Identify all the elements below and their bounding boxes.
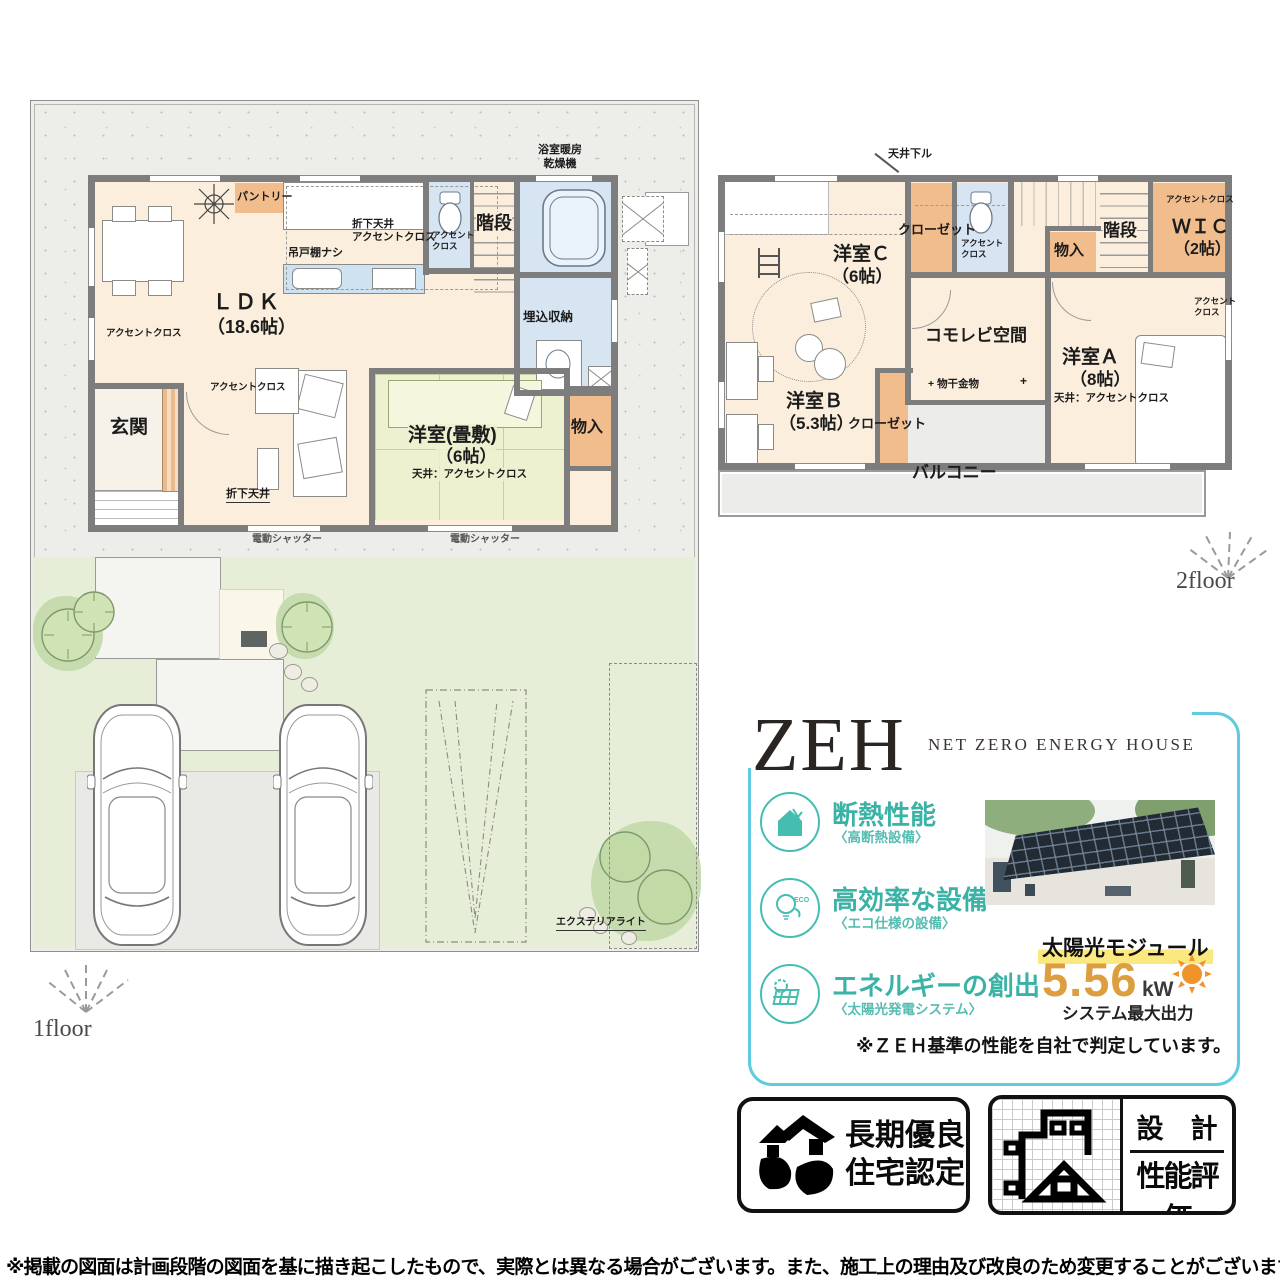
solar-panel-icon <box>760 964 820 1024</box>
wall <box>423 268 520 274</box>
window <box>88 228 95 286</box>
window-shutter <box>248 525 320 532</box>
room-label-ldk-size: （18.6帖） <box>207 316 296 339</box>
plant-icon <box>190 180 238 228</box>
ladder-icon <box>758 248 780 278</box>
footer-disclaimer: ※掲載の図面は計画段階の図面を基に描き起こしたもので、実際とは異なる場合がござい… <box>6 1252 1278 1279</box>
dining-table <box>102 220 184 282</box>
kitchen-ceiling-label: 折下天井 アクセントクロス <box>352 218 435 244</box>
window <box>536 175 592 182</box>
accent-a-label: アクセント クロス <box>1194 296 1236 317</box>
ac-unit-dashed <box>627 248 648 295</box>
kw-unit: kW <box>1142 978 1174 1001</box>
bed-pillow <box>1141 342 1176 368</box>
wall <box>1008 175 1014 275</box>
ottoman <box>814 348 846 380</box>
floor1-label: 1floor <box>33 1014 92 1044</box>
room-a-label: 洋室Ａ <box>1062 346 1119 370</box>
ceiling-slope-line <box>730 234 902 235</box>
solar-roof-photo <box>985 800 1215 905</box>
kitchen-note-label: 吊戸棚ナシ <box>288 247 343 261</box>
window-shutter <box>428 525 512 532</box>
sloped-ceiling-area <box>725 182 829 235</box>
closet-b-label: クローゼット <box>848 416 926 432</box>
komorebi-label: コモレビ空間 <box>925 325 1027 346</box>
window <box>1058 175 1098 182</box>
wall <box>514 175 520 395</box>
pantry-label: パントリー <box>237 191 293 205</box>
zeh-subtitle: NET ZERO ENERGY HOUSE <box>928 735 1195 755</box>
rays-decoration <box>36 962 136 1014</box>
floor2-label: 2floor <box>1176 566 1235 596</box>
tatami-ceiling-label: 天井：アクセントクロス <box>412 468 527 481</box>
window <box>611 300 618 342</box>
genkan-porch-steps <box>95 490 178 526</box>
wall <box>1045 228 1050 278</box>
badge-choki-text: 長期優良 住宅認定 <box>845 1117 965 1193</box>
wall <box>514 272 618 278</box>
badge-choki-yuryo: 長期優良 住宅認定 <box>737 1097 970 1213</box>
room-c-label: 洋室Ｃ <box>833 243 890 267</box>
room-label-ldk: ＬＤＫ <box>212 290 281 316</box>
insulation-icon <box>760 792 820 852</box>
neighbor-outline <box>609 663 697 949</box>
closet-c-label: クローゼット <box>898 222 976 238</box>
bathtub-icon <box>541 188 607 268</box>
stairs-label-2f: 階段 <box>1103 220 1137 241</box>
monoire-label-2f: 物入 <box>1054 242 1084 261</box>
stepping-stone <box>284 664 302 680</box>
planting-bed-outline <box>425 689 527 943</box>
zeh-note: ※ＺＥＨ基準の性能を自社で判定しています。 <box>856 1032 1231 1058</box>
stepping-stone <box>269 643 288 659</box>
doormat <box>241 631 267 647</box>
wall <box>178 383 184 532</box>
window <box>718 382 725 428</box>
shutter-label: 電動シャッター <box>450 534 520 547</box>
desk <box>726 414 758 464</box>
wic-accent-label: アクセントクロス <box>1166 194 1234 205</box>
wall <box>470 175 474 270</box>
wall <box>1045 278 1051 463</box>
room-a-ceiling-label: 天井：アクセントクロス <box>1054 392 1169 405</box>
window <box>718 232 725 282</box>
badge-grid-area <box>992 1099 1123 1211</box>
wall <box>88 383 183 389</box>
desk-chair <box>758 356 774 382</box>
monohoshi-label: + 物干金物 <box>928 378 979 391</box>
tatami-size-label: （6帖） <box>436 446 496 467</box>
system-output-label: システム最大出力 <box>1062 1000 1194 1024</box>
monohoshi-mark: + <box>1020 374 1027 389</box>
wall <box>875 368 913 373</box>
sofa-cushion <box>297 437 343 479</box>
room-b-label: 洋室Ｂ <box>786 390 843 414</box>
window <box>300 175 360 182</box>
svg-text:ECO: ECO <box>794 897 809 904</box>
desk <box>726 342 758 400</box>
genkan-label: 玄関 <box>110 416 148 440</box>
wall <box>564 466 618 471</box>
kw-value: 5.56 kW <box>1042 952 1173 1007</box>
sun-icon <box>1170 952 1214 996</box>
wall <box>369 368 570 374</box>
wall <box>905 272 1045 278</box>
wall <box>1148 272 1232 278</box>
badge-sekkei-bottom: 性能評価 <box>1124 1153 1230 1215</box>
wall <box>564 386 618 391</box>
tree-icon <box>71 589 117 635</box>
toilet-accent-label-2f: アクセント クロス <box>961 238 1003 259</box>
tatami-label: 洋室(畳敷) <box>408 424 497 448</box>
tenjo-label: 天井下ル <box>888 148 932 162</box>
zeh-feature-sub: 〈エコ仕様の設備〉 <box>834 912 956 932</box>
house-grid-icon <box>992 1099 1120 1211</box>
zeh-feature-sub: 〈太陽光発電システム〉 <box>834 998 982 1018</box>
wall <box>88 525 618 532</box>
wall <box>1045 272 1155 278</box>
wall <box>1045 226 1101 231</box>
wall <box>564 368 570 532</box>
stepping-stone <box>301 677 318 692</box>
ceiling-slope-line <box>730 214 902 215</box>
zeh-title: ZEH <box>752 702 906 789</box>
dining-chair <box>112 280 136 296</box>
shutter-label: 電動シャッター <box>252 534 322 547</box>
toilet-accent-label: アクセント クロス <box>432 230 474 251</box>
flyer-page: エクステリアライト <box>0 0 1280 1280</box>
desk-chair <box>758 424 774 450</box>
balcony-label: バルコニー <box>912 462 997 483</box>
window <box>775 175 837 182</box>
storage-label: 埋込収納 <box>523 310 573 326</box>
car-icon <box>273 701 373 949</box>
down-ceiling-label: 折下天井 <box>226 488 270 503</box>
bath-heater-label: 浴室暖房 乾燥機 <box>538 144 582 172</box>
stairs-label-1f: 階段 <box>476 212 512 235</box>
wall <box>1148 175 1153 275</box>
exterior-light-label: エクステリアライト <box>556 917 646 931</box>
badge-sekkei-hyoka: 設 計 性能評価 <box>988 1095 1236 1215</box>
wall <box>369 368 375 532</box>
dining-chair <box>148 280 172 296</box>
wic-size-label: （2帖） <box>1174 240 1231 260</box>
eco-bulb-icon: ECO <box>760 878 820 938</box>
tree-icon <box>279 599 335 655</box>
zeh-feature-sub: 〈高断熱設備〉 <box>834 826 929 846</box>
window <box>795 463 865 470</box>
window <box>88 318 95 360</box>
balcony-floor <box>908 405 1048 465</box>
car-icon <box>87 701 187 949</box>
tv-board <box>257 448 279 490</box>
room-b-size: （5.3帖） <box>779 413 854 434</box>
house-leaves-icon <box>751 1109 843 1201</box>
dining-chair <box>148 206 172 222</box>
accent-living-label: アクセントクロス <box>210 382 286 394</box>
monoire-label-1f: 物入 <box>571 418 603 438</box>
wall <box>611 175 618 532</box>
kw-number: 5.56 <box>1042 953 1137 1006</box>
wall <box>908 400 1048 405</box>
accent-left-label: アクセントクロス <box>106 328 182 340</box>
room-a-size: （8帖） <box>1070 369 1130 390</box>
wic-label: ＷＩＣ <box>1172 216 1229 240</box>
window <box>1085 463 1170 470</box>
window <box>150 175 220 182</box>
ac-unit-dashed <box>622 196 664 242</box>
wall <box>905 175 911 335</box>
room-c-size: （6帖） <box>832 266 892 287</box>
badge-sekkei-top: 設 計 <box>1130 1107 1224 1153</box>
stairs-2f-upper <box>1010 182 1098 226</box>
dining-chair <box>112 206 136 222</box>
